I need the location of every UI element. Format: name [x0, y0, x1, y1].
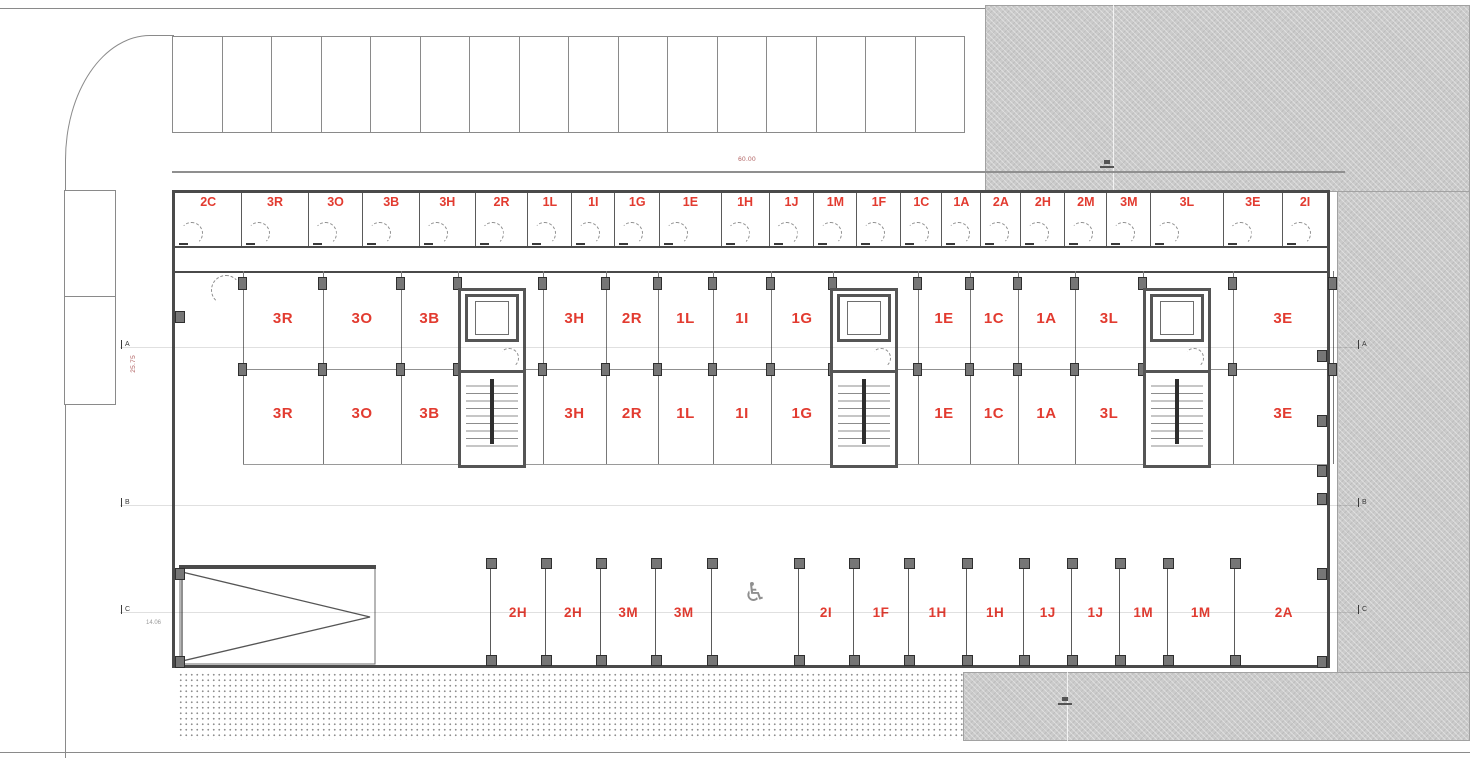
surface-parking-space	[371, 37, 421, 132]
unit-label: 3R	[255, 405, 311, 422]
unit-label: 1L	[658, 310, 714, 327]
storage-unit-cell: 1C	[901, 193, 942, 246]
elevator-car	[475, 301, 509, 335]
unit-label: 3R	[255, 310, 311, 327]
elevator-car	[847, 301, 881, 335]
storage-unit-cell: 1E	[660, 193, 722, 246]
column-marker	[849, 558, 860, 569]
door-leaf-icon	[818, 243, 827, 246]
adjacent-building-mass-bottom	[963, 672, 1470, 741]
unit-label: 3L	[1081, 310, 1137, 327]
door-leaf-icon	[619, 243, 628, 246]
column-marker	[538, 363, 547, 376]
column-marker	[766, 277, 775, 290]
column-marker	[707, 558, 718, 569]
column-marker	[538, 277, 547, 290]
entrance-door-swing-icon	[211, 275, 241, 305]
unit-label: 2M	[1065, 195, 1106, 209]
surface-parking-space	[817, 37, 867, 132]
door-leaf-icon	[946, 243, 955, 246]
unit-label: 3M	[1107, 195, 1150, 209]
storage-unit-cell: 1M	[814, 193, 857, 246]
grid-line-a	[120, 347, 1362, 348]
unit-label: 1I	[572, 195, 614, 209]
column-marker	[1013, 363, 1022, 376]
storage-unit-cell: 3O	[309, 193, 364, 246]
column-marker	[486, 655, 497, 666]
column-marker	[596, 558, 607, 569]
storage-unit-cell: 2M	[1065, 193, 1107, 246]
surface-parking-space	[322, 37, 372, 132]
storage-unit-cell: 3H	[420, 193, 476, 246]
site-boundary-bottom-line	[0, 752, 1470, 753]
grid-tag-c-left: C	[121, 605, 130, 614]
storage-unit-cell: 2C	[175, 193, 242, 246]
door-leaf-icon	[480, 243, 489, 246]
unit-label: 3E	[1255, 310, 1311, 327]
elevator-shaft	[1150, 294, 1204, 342]
door-leaf-icon	[532, 243, 541, 246]
storage-units-top-row: 2C3R3O3B3H2R1L1I1G1E1H1J1M1F1C1A2A2H2M3M…	[175, 193, 1327, 248]
unit-label: 1M	[814, 195, 856, 209]
parking-stall: 2H	[545, 563, 600, 666]
unit-label: 1I	[714, 310, 770, 327]
parking-stall: 2H	[490, 563, 545, 666]
door-leaf-icon	[985, 243, 994, 246]
storage-unit-cell: 1F	[857, 193, 901, 246]
site-boundary-top-line	[0, 8, 990, 9]
storage-unit-cell: 1L	[528, 193, 572, 246]
surface-parking-space	[520, 37, 570, 132]
column-marker	[1230, 558, 1241, 569]
column-marker	[708, 277, 717, 290]
surface-parking-space	[916, 37, 965, 132]
unit-label: 1F	[857, 195, 900, 209]
door-leaf-icon	[664, 243, 673, 246]
column-marker	[1019, 558, 1030, 569]
door-leaf-icon	[905, 243, 914, 246]
unit-label: 3H	[547, 310, 603, 327]
unit-label: 1G	[774, 405, 830, 422]
parking-stall: 1M	[1167, 563, 1234, 666]
unit-label: 3R	[242, 195, 307, 209]
stair-core	[458, 288, 526, 468]
roadside-parking-bay	[64, 296, 116, 405]
column-marker	[651, 558, 662, 569]
column-marker	[1228, 363, 1237, 376]
surface-parking-row	[172, 36, 965, 133]
unit-label: 1C	[901, 195, 941, 209]
column-marker	[1317, 493, 1327, 505]
unit-label: 3O	[309, 195, 363, 209]
unit-label: 2C	[175, 195, 241, 209]
column-marker	[913, 363, 922, 376]
storage-unit-cell: 3L	[1151, 193, 1223, 246]
unit-label: 3B	[363, 195, 419, 209]
adjacent-building-mass-right	[1337, 191, 1470, 673]
column-marker	[794, 655, 805, 666]
floor-plan-canvas: 2C3R3O3B3H2R1L1I1G1E1H1J1M1F1C1A2A2H2M3M…	[0, 0, 1470, 758]
column-marker	[1317, 415, 1327, 427]
column-marker	[1163, 655, 1174, 666]
unit-label: 1A	[942, 195, 980, 209]
column-marker	[651, 655, 662, 666]
door-leaf-icon	[1287, 243, 1296, 246]
column-marker	[1317, 465, 1327, 477]
column-marker	[1067, 558, 1078, 569]
grid-tag-b-right: B	[1358, 498, 1367, 507]
column-marker	[913, 277, 922, 290]
unit-label: 2R	[604, 405, 660, 422]
parking-stall: 1H	[966, 563, 1023, 666]
storage-unit-cell: 3M	[1107, 193, 1151, 246]
door-leaf-icon	[313, 243, 322, 246]
column-marker	[1070, 277, 1079, 290]
door-leaf-icon	[576, 243, 585, 246]
column-marker	[1019, 655, 1030, 666]
unit-label: 2I	[1283, 195, 1327, 209]
stair-flight	[1151, 377, 1203, 460]
stair-flight	[466, 377, 518, 460]
column-marker	[541, 558, 552, 569]
section-line-bottom	[1067, 672, 1068, 741]
unit-label: 2R	[476, 195, 528, 209]
column-marker	[653, 363, 662, 376]
unit-label: 3L	[1081, 405, 1137, 422]
storage-unit-cell: 2R	[476, 193, 529, 246]
canopy-edge-line	[172, 171, 1345, 173]
unit-label: 1G	[774, 310, 830, 327]
column-marker	[904, 558, 915, 569]
grid-tag-c-right: C	[1358, 605, 1367, 614]
unit-label: 1G	[615, 195, 659, 209]
dimension-left-lower: 14.06	[146, 620, 161, 626]
column-marker	[794, 558, 805, 569]
door-leaf-icon	[861, 243, 870, 246]
grid-line-b	[120, 505, 1362, 506]
surface-parking-space	[421, 37, 471, 132]
column-marker	[601, 277, 610, 290]
parking-stall: 1M	[1119, 563, 1167, 666]
unit-label: 1L	[528, 195, 571, 209]
door-leaf-icon	[367, 243, 376, 246]
stair-core	[1143, 288, 1211, 468]
unit-label: 3O	[334, 310, 390, 327]
door-leaf-icon	[1155, 243, 1164, 246]
stair-core	[830, 288, 898, 468]
column-marker	[849, 655, 860, 666]
unit-label: 1E	[916, 310, 972, 327]
ramp-icon	[179, 564, 377, 666]
unit-label: 1E	[660, 195, 721, 209]
column-marker	[1328, 277, 1337, 290]
elevator-car	[1160, 301, 1194, 335]
door-leaf-icon	[1228, 243, 1237, 246]
column-marker	[596, 655, 607, 666]
door-leaf-icon	[424, 243, 433, 246]
main-block-top-wall	[175, 271, 1327, 273]
section-marker-icon	[1100, 160, 1114, 168]
storage-unit-cell: 2A	[981, 193, 1021, 246]
unit-label: 3B	[402, 310, 458, 327]
dimension-top-width: 60.00	[725, 156, 769, 163]
parking-stall: 1H	[908, 563, 966, 666]
column-marker	[175, 656, 185, 668]
stair-rail	[862, 379, 866, 444]
column-marker	[1317, 350, 1327, 362]
column-marker	[318, 277, 327, 290]
unit-label: 3L	[1151, 195, 1222, 209]
unit-label: 1A	[1019, 405, 1075, 422]
column-marker	[1013, 277, 1022, 290]
surface-parking-space	[718, 37, 768, 132]
grid-line-c	[120, 612, 1362, 613]
storage-unit-cell: 2I	[1283, 193, 1327, 246]
interior-parking-row: 2H2H3M3M♿2I1F1H1H1J1J1M1M2A	[490, 563, 1333, 666]
column-marker	[486, 558, 497, 569]
road-curb-corner	[65, 35, 174, 174]
storage-unit-cell: 3E	[1224, 193, 1284, 246]
grid-tag-b-left: B	[121, 498, 130, 507]
column-marker	[1317, 656, 1327, 668]
unit-label: 1I	[714, 405, 770, 422]
door-leaf-icon	[1111, 243, 1120, 246]
door-swing-icon	[871, 348, 891, 368]
column-marker	[707, 655, 718, 666]
accessible-parking-icon: ♿	[712, 577, 798, 608]
storage-unit-cell: 3B	[363, 193, 420, 246]
door-swing-icon	[1184, 348, 1204, 368]
column-marker	[965, 363, 974, 376]
column-marker	[1230, 655, 1241, 666]
unit-label: 3B	[402, 405, 458, 422]
surface-parking-space	[223, 37, 273, 132]
column-marker	[1317, 568, 1327, 580]
surface-parking-space	[569, 37, 619, 132]
column-marker	[965, 277, 974, 290]
column-marker	[1228, 277, 1237, 290]
unit-label: 1L	[658, 405, 714, 422]
column-marker	[1163, 558, 1174, 569]
door-leaf-icon	[774, 243, 783, 246]
surface-parking-space	[272, 37, 322, 132]
column-marker	[708, 363, 717, 376]
stair-rail	[1175, 379, 1179, 444]
column-marker	[1115, 655, 1126, 666]
unit-label: 2A	[981, 195, 1020, 209]
door-leaf-icon	[726, 243, 735, 246]
surface-parking-space	[470, 37, 520, 132]
unit-label: 1J	[770, 195, 814, 209]
column-marker	[396, 277, 405, 290]
column-marker	[238, 277, 247, 290]
storage-unit-cell: 1G	[615, 193, 660, 246]
dimension-left-height: 25.75	[130, 355, 137, 373]
unit-label: 3E	[1224, 195, 1283, 209]
door-leaf-icon	[1069, 243, 1078, 246]
column-marker	[904, 655, 915, 666]
section-marker-icon	[1058, 697, 1072, 705]
sidewalk-paving	[178, 672, 963, 740]
parking-stall: 1J	[1023, 563, 1071, 666]
elevator-shaft	[465, 294, 519, 342]
column-marker	[396, 363, 405, 376]
unit-label: 2R	[604, 310, 660, 327]
parking-stall: 3M	[655, 563, 711, 666]
surface-parking-space	[668, 37, 718, 132]
column-marker	[766, 363, 775, 376]
grid-tag-a-left: A	[121, 340, 130, 349]
unit-label: 1C	[966, 405, 1022, 422]
parking-stall: 1J	[1071, 563, 1118, 666]
door-leaf-icon	[179, 243, 188, 246]
unit-label: 1E	[916, 405, 972, 422]
accessible-parking-stall: ♿	[711, 563, 798, 666]
column-marker	[318, 363, 327, 376]
surface-parking-space	[619, 37, 669, 132]
column-marker	[962, 558, 973, 569]
column-marker	[1070, 363, 1079, 376]
surface-parking-space	[173, 37, 223, 132]
column-marker	[175, 568, 185, 580]
column-marker	[175, 311, 185, 323]
grid-tag-a-right: A	[1358, 340, 1367, 349]
column-marker	[541, 655, 552, 666]
column-marker	[1328, 363, 1337, 376]
unit-label: 2H	[1021, 195, 1064, 209]
storage-unit-cell: 3R	[242, 193, 308, 246]
unit-label: 3O	[334, 405, 390, 422]
unit-label: 3H	[547, 405, 603, 422]
column-marker	[653, 277, 662, 290]
parking-stall: 3M	[600, 563, 655, 666]
storage-unit-cell: 1H	[722, 193, 770, 246]
parking-stall: 1F	[853, 563, 908, 666]
parking-stall: 2I	[798, 563, 853, 666]
door-leaf-icon	[1025, 243, 1034, 246]
column-marker	[601, 363, 610, 376]
door-swing-icon	[499, 348, 519, 368]
storage-unit-cell: 1I	[572, 193, 615, 246]
adjacent-building-mass-top	[985, 5, 1470, 192]
unit-label: 1C	[966, 310, 1022, 327]
column-marker	[1067, 655, 1078, 666]
column-marker	[962, 655, 973, 666]
roadside-parking-bay	[64, 190, 116, 299]
stair-rail	[490, 379, 494, 444]
building-outline: 2C3R3O3B3H2R1L1I1G1E1H1J1M1F1C1A2A2H2M3M…	[172, 190, 1330, 668]
surface-parking-space	[866, 37, 916, 132]
storage-unit-cell: 1A	[942, 193, 981, 246]
column-marker	[1115, 558, 1126, 569]
unit-label: 1H	[722, 195, 769, 209]
stair-flight	[838, 377, 890, 460]
unit-label: 1A	[1019, 310, 1075, 327]
surface-parking-space	[767, 37, 817, 132]
storage-unit-cell: 1J	[770, 193, 815, 246]
storage-unit-cell: 2H	[1021, 193, 1065, 246]
column-marker	[238, 363, 247, 376]
unit-label: 3H	[420, 195, 475, 209]
unit-label: 3E	[1255, 405, 1311, 422]
elevator-shaft	[837, 294, 891, 342]
door-leaf-icon	[246, 243, 255, 246]
